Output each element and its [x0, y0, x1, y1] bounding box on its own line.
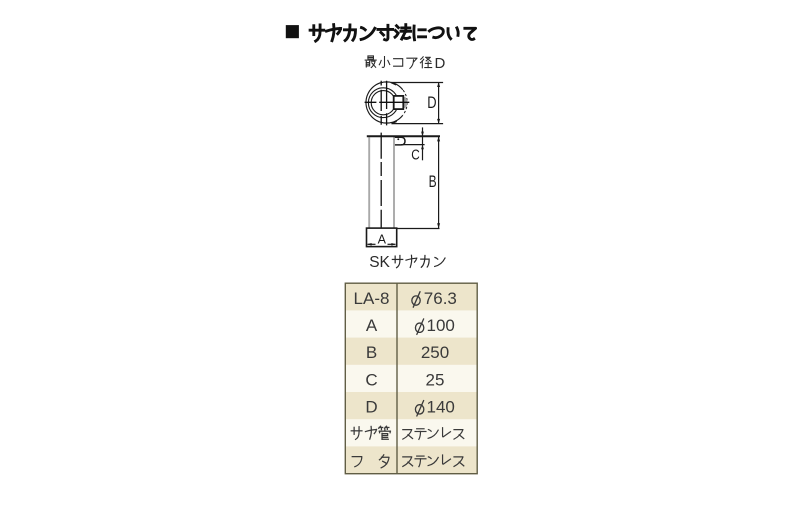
svg-text:SK: SK — [369, 254, 390, 271]
svg-text:140: 140 — [427, 398, 455, 417]
svg-text:A: A — [366, 316, 378, 335]
svg-text:B: B — [429, 173, 437, 191]
svg-text:D: D — [435, 55, 446, 72]
svg-text:D: D — [427, 94, 436, 112]
svg-text:C: C — [365, 370, 377, 389]
svg-text:A: A — [378, 232, 387, 246]
svg-text:250: 250 — [421, 343, 449, 362]
svg-text:100: 100 — [427, 316, 455, 335]
svg-text:76.3: 76.3 — [424, 289, 457, 308]
svg-text:D: D — [365, 398, 377, 417]
svg-text:C: C — [411, 147, 420, 163]
svg-text:25: 25 — [426, 370, 445, 389]
svg-text:B: B — [366, 343, 377, 362]
svg-text:LA-8: LA-8 — [354, 289, 390, 308]
